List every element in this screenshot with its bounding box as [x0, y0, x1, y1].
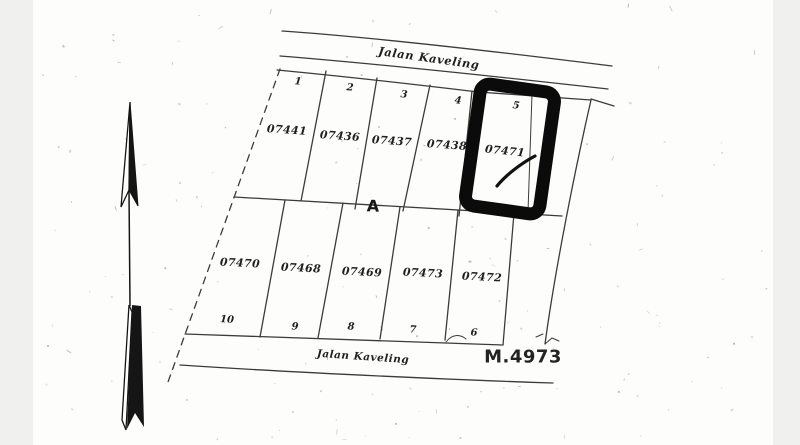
plot-index: 8	[347, 321, 355, 332]
plot-index: 2	[346, 82, 354, 94]
plot-index: 1	[294, 76, 302, 88]
plot-cert: 07468	[281, 260, 322, 275]
plot-index: 10	[220, 314, 234, 326]
boundary-end-tick	[536, 334, 543, 337]
plot-cert: 07436	[319, 128, 360, 144]
plot-cert: 07437	[371, 133, 412, 149]
plot-cert: 07438	[426, 137, 467, 153]
plot-index: 9	[291, 321, 299, 332]
divider-plot-7-6	[445, 210, 458, 340]
north-arrow-icon	[121, 102, 144, 430]
plot-index-highlighted: 5	[512, 100, 520, 112]
plot-cert: 07470	[220, 255, 261, 270]
north-arrow-shaft	[129, 191, 130, 306]
plot-index: 7	[409, 324, 417, 335]
plot-cert: 07472	[462, 269, 503, 284]
sheet-number: M.4973	[484, 347, 562, 368]
plot-cert: 07441	[266, 122, 307, 138]
squiggle-mark	[446, 336, 466, 342]
parcel-linework	[0, 0, 800, 445]
plot-index: 4	[454, 95, 462, 107]
divider-plot-9-8	[318, 203, 343, 338]
boundary-end-notch	[545, 338, 559, 344]
divider-plot-8-7	[380, 207, 400, 339]
plot-index: 3	[400, 89, 408, 101]
plot-index: 6	[470, 327, 478, 338]
road-bottom-line	[180, 365, 553, 383]
north-arrow-head-right	[129, 102, 138, 206]
plot-cert: 07473	[403, 265, 444, 280]
plot-6-right-boundary	[503, 213, 514, 345]
plot-cert: 07469	[342, 264, 383, 279]
scanned-plot-map: Jalan Kaveling Jalan Kaveling A M.4973 1…	[0, 0, 800, 445]
block-corner-tick	[591, 99, 614, 106]
block-label: A	[366, 196, 379, 215]
